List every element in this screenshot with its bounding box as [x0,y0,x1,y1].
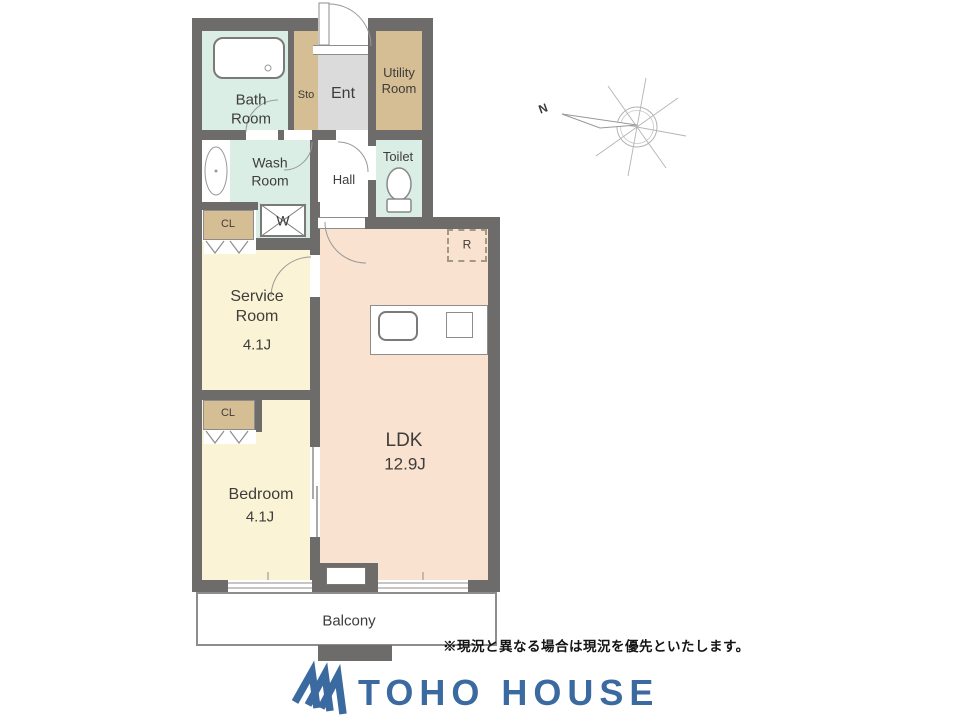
bifold-door-lower [204,430,256,444]
sliding-door-opening [310,447,320,537]
disclaimer-text: ※現況と異なる場合は現況を優先といたします。 [443,635,750,655]
label-bath: Bath Room [219,91,283,129]
wall-closet-top [202,202,258,210]
wall-bath-storage [288,31,294,130]
label-ldk: LDK [386,429,423,453]
brand-logo-mark [295,672,343,714]
hall-door-arc [338,142,368,172]
label-closet-upper: CL [221,218,235,232]
label-service-size: 4.1J [243,337,271,356]
floorplan-page: N Bath Room Sto Ent Utility Room Wash Ro… [0,0,960,720]
label-balcony: Balcony [322,613,375,632]
wall-closet-stub [255,398,262,432]
entrance-threshold [313,45,368,55]
compass-icon: N [537,78,686,176]
compass-north-label: N [537,100,550,116]
wall-mid-vert-2 [310,400,320,447]
kitchen-stove [446,312,473,338]
wall-wash-hall [310,140,318,202]
label-closet-lower: CL [221,407,235,421]
label-ldk-size: 12.9J [384,453,426,474]
pillar-inner [326,567,366,585]
wall-mid-row [192,130,433,140]
kitchen-sink [378,311,418,341]
service-door-opening [310,255,320,297]
label-toilet: Toilet [383,149,413,165]
label-entrance: Ent [331,84,355,104]
brand-logo-text: TOHO HOUSE [358,672,659,713]
room-ldk [318,229,488,580]
label-bedroom-size: 4.1J [246,509,274,528]
wall-top-a [192,18,318,31]
wall-left [192,18,202,592]
label-bedroom: Bedroom [229,485,294,505]
wall-ldk-top [365,217,500,229]
bifold-door-upper [204,240,256,254]
vanity-area [202,140,230,202]
label-service: Service Room [217,287,297,327]
entrance-door-icon [319,3,371,46]
label-utility: Utility Room [372,65,426,98]
balcony-divider [318,645,392,661]
wall-right-lower [488,229,500,592]
bath-door-opening [246,130,278,140]
label-hall: Hall [333,172,355,188]
wash-door-opening [284,130,312,140]
label-washer: W [276,212,289,230]
bathtub [213,37,285,79]
wall-right-upper [422,18,433,229]
label-wash: Wash Room [241,155,299,190]
ldk-door-threshold [318,217,365,229]
hall-door-opening [336,130,368,140]
toilet-door-opening [368,146,376,180]
window-ldk [378,580,468,592]
window-bedroom [228,580,312,592]
wall-mid-vert-1 [310,297,320,390]
label-refrigerator: R [463,238,472,253]
label-storage: Sto [298,89,315,103]
brand-logo: TOHO HOUSE [292,660,672,718]
wall-under-washer [256,238,310,250]
